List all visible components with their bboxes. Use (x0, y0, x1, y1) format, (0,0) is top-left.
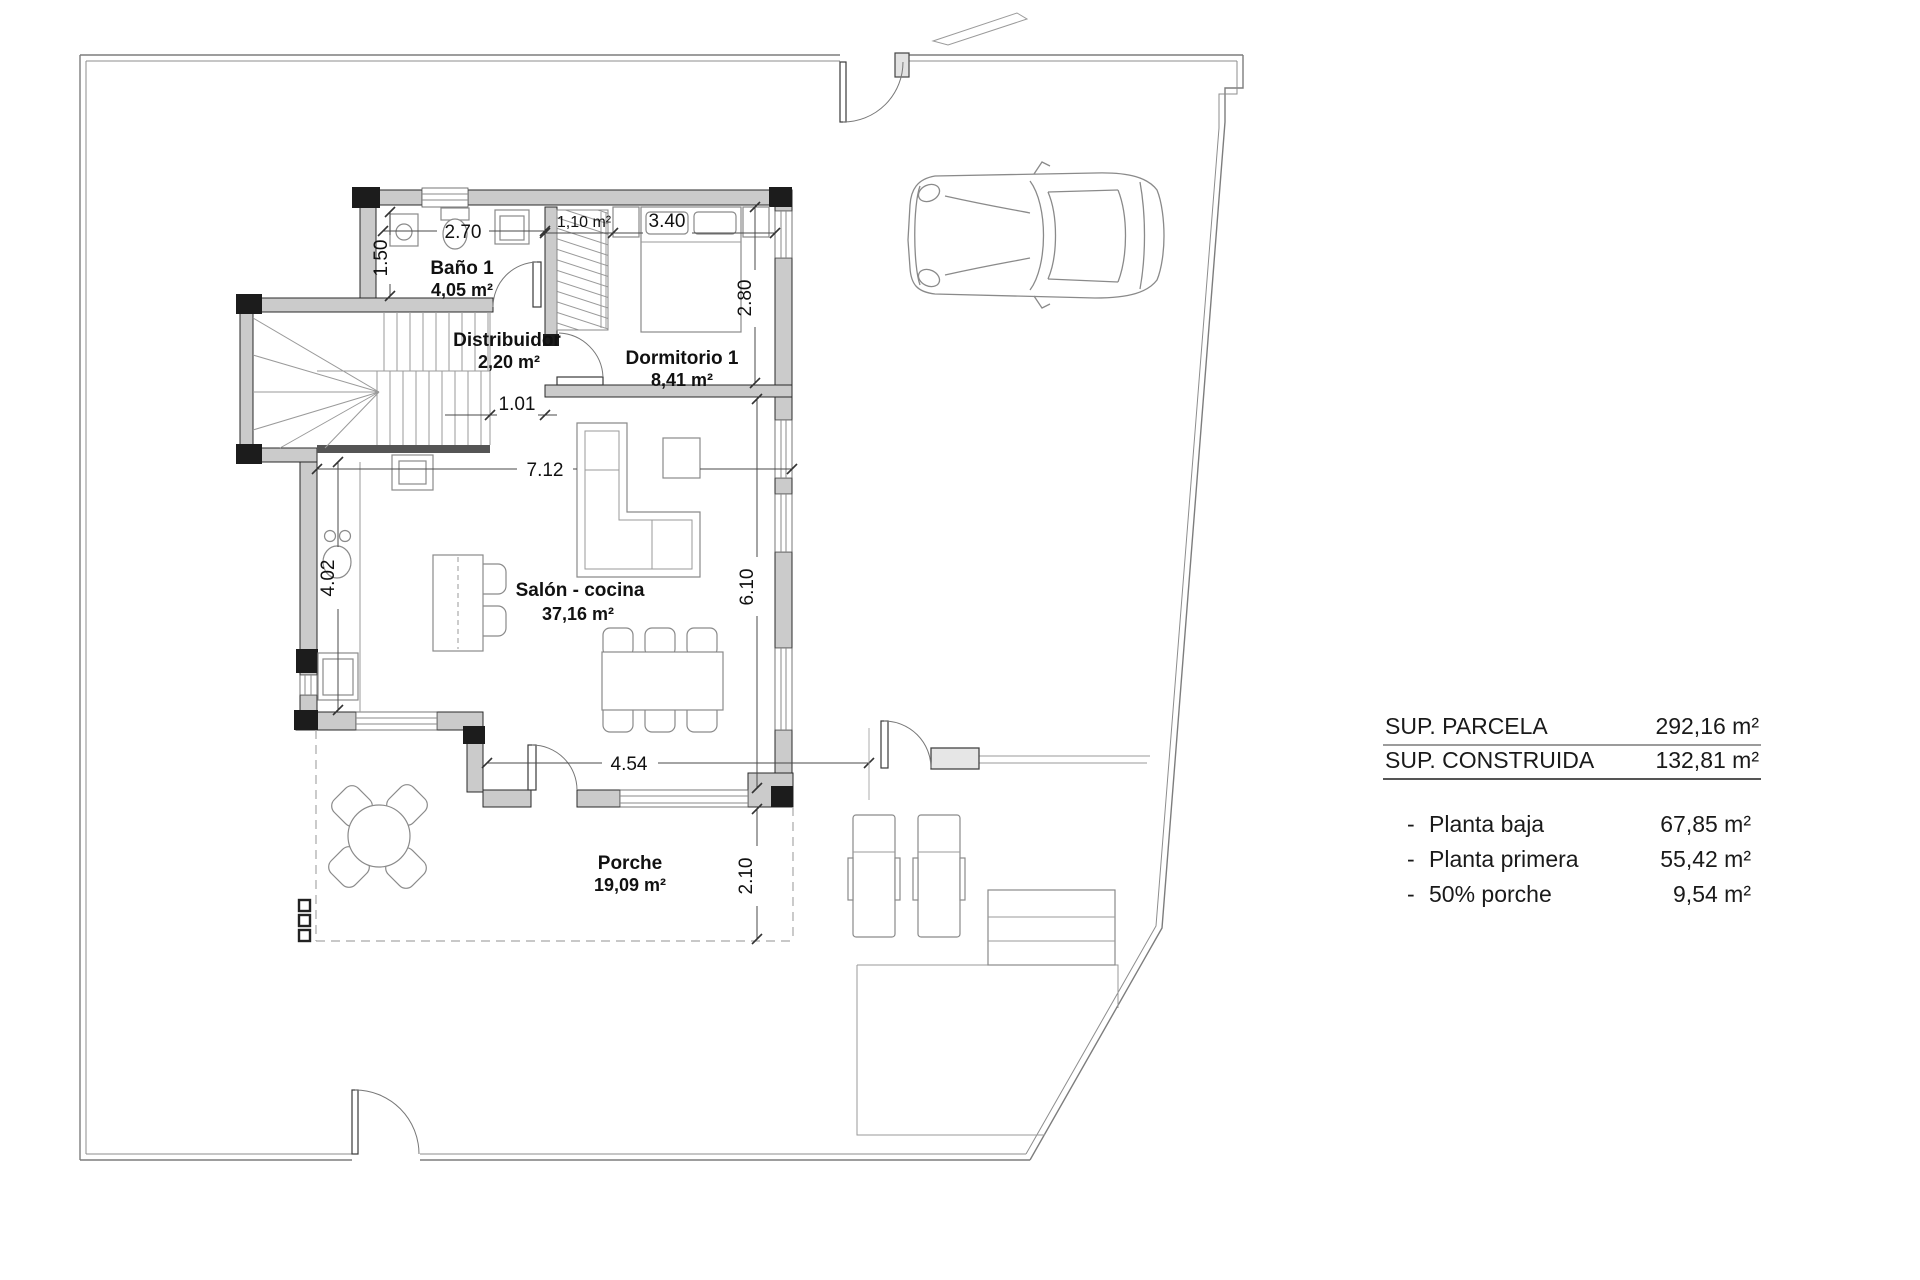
dim-porch-depth: 2.10 (736, 858, 757, 895)
porch-markers (299, 900, 310, 941)
bullet: - (1383, 881, 1429, 907)
entrance-gate-bottom (352, 1090, 419, 1154)
dim-bath-depth: 1.50 (371, 240, 392, 277)
fence-pier (931, 748, 979, 769)
kitchen-island (433, 555, 506, 651)
dim-bath-width: 2.70 (445, 222, 482, 243)
room-label-distribuidor: Distribuidor (453, 330, 561, 351)
summary-label: SUP. PARCELA (1385, 713, 1548, 739)
dim-living-right-depth: 6.10 (737, 569, 758, 606)
summary-row: SUP. CONSTRUIDA 132,81 m² (1383, 746, 1761, 780)
breakdown-row: - Planta primera 55,42 m² (1383, 846, 1761, 872)
room-label-dormitorio: Dormitorio 1 (626, 348, 739, 369)
breakdown-value: 9,54 m² (1626, 881, 1761, 907)
breakdown-value: 55,42 m² (1626, 846, 1761, 872)
breakdown-label: 50% porche (1429, 881, 1626, 907)
window (356, 712, 437, 730)
porch-entry-door (881, 721, 931, 768)
patio-area (857, 890, 1118, 1135)
dim-living-left-depth: 4.02 (318, 560, 339, 597)
window (775, 211, 792, 258)
breakdown-value: 67,85 m² (1626, 811, 1761, 837)
car-icon (908, 162, 1164, 308)
coffee-table (663, 438, 700, 478)
kitchen-fixtures (318, 455, 506, 712)
summary-label: SUP. CONSTRUIDA (1385, 747, 1594, 773)
entrance-gate-top (840, 62, 903, 122)
summary-value: 292,16 m² (1655, 713, 1759, 739)
dim-living-width: 7.12 (527, 460, 564, 481)
room-area-distribuidor: 2,20 m² (478, 352, 540, 372)
summary-breakdown: - Planta baja 67,85 m² - Planta primera … (1383, 811, 1761, 907)
window (775, 648, 792, 730)
area-summary-table: SUP. PARCELA 292,16 m² SUP. CONSTRUIDA 1… (1383, 712, 1761, 916)
breakdown-label: Planta primera (1429, 846, 1626, 872)
window (620, 790, 748, 807)
summary-value: 132,81 m² (1655, 747, 1759, 773)
dim-bedroom-depth: 2.80 (735, 280, 756, 317)
dim-bedroom-width: 3.40 (649, 211, 686, 232)
room-area-bano: 4,05 m² (431, 280, 493, 300)
room-area-porche: 19,09 m² (594, 875, 666, 895)
porch-furniture (325, 781, 431, 892)
bedroom-door (557, 333, 603, 385)
breakdown-row: - 50% porche 9,54 m² (1383, 881, 1761, 907)
floor-plan-page: Baño 1 4,05 m² Distribuidor 2,20 m² Dorm… (0, 0, 1920, 1280)
bullet: - (1383, 846, 1429, 872)
dining-table (602, 652, 723, 710)
room-label-porche: Porche (598, 853, 662, 874)
patio-steps (988, 890, 1115, 965)
dim-hall-opening: 1.01 (499, 394, 536, 415)
room-label-bano: Baño 1 (430, 258, 494, 279)
window (422, 188, 468, 207)
summary-row: SUP. PARCELA 292,16 m² (1383, 712, 1761, 746)
breakdown-label: Planta baja (1429, 811, 1626, 837)
washbasin (390, 214, 418, 246)
floor-plan-drawing: Baño 1 4,05 m² Distribuidor 2,20 m² Dorm… (0, 0, 1920, 1280)
banner-shape (933, 13, 1027, 45)
fireplace (392, 455, 433, 490)
sun-loungers (848, 815, 965, 937)
room-label-salon: Salón - cocina (516, 580, 645, 601)
closet-area-label: 1,10 m² (557, 214, 612, 231)
stair-stringer-wall (317, 445, 490, 453)
sun-lounger (848, 815, 900, 937)
bathroom-door (493, 262, 541, 307)
dining-table-set (602, 628, 723, 732)
garden-fence (881, 721, 1150, 769)
round-table (348, 805, 410, 867)
room-area-dormitorio: 8,41 m² (651, 370, 713, 390)
room-area-salon: 37,16 m² (542, 604, 614, 624)
window (300, 675, 317, 695)
window (775, 494, 792, 552)
bullet: - (1383, 811, 1429, 837)
breakdown-row: - Planta baja 67,85 m² (1383, 811, 1761, 837)
porch-door (528, 745, 577, 790)
sink (495, 210, 529, 244)
dim-porch-width: 4.54 (611, 754, 648, 775)
sun-lounger (913, 815, 965, 937)
